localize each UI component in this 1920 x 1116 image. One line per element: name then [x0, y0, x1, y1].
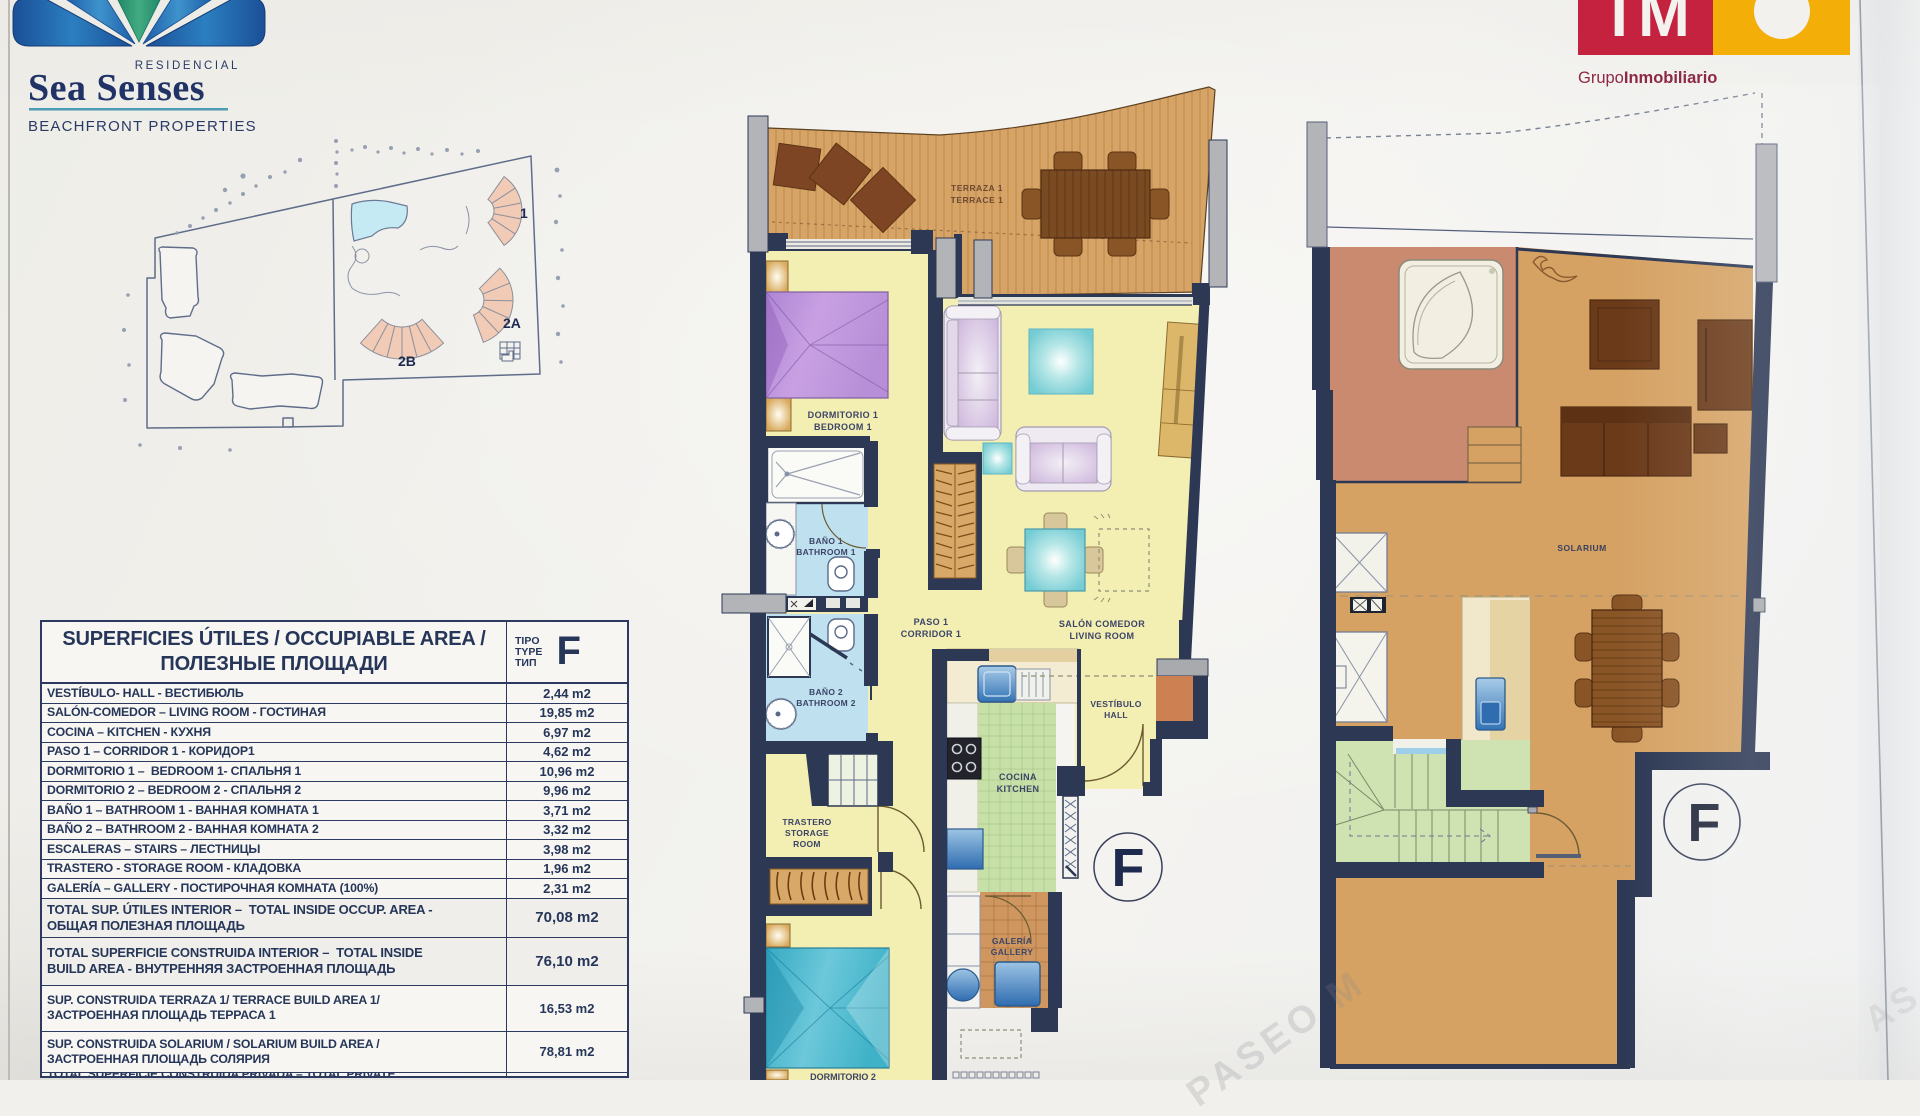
svg-text:1: 1 — [520, 205, 528, 221]
svg-text:GrupoInmobiliario: GrupoInmobiliario — [1578, 69, 1717, 87]
svg-text:CORRIDOR 1: CORRIDOR 1 — [901, 629, 962, 639]
svg-text:BAÑO 2: BAÑO 2 — [809, 687, 843, 697]
svg-text:KITCHEN: KITCHEN — [997, 784, 1040, 794]
svg-text:Sea Senses: Sea Senses — [28, 67, 205, 109]
svg-text:2A: 2A — [503, 315, 521, 331]
svg-text:VESTÍBULO: VESTÍBULO — [1090, 699, 1141, 709]
svg-text:BATHROOM 2: BATHROOM 2 — [796, 698, 856, 708]
svg-text:TM: TM — [1600, 0, 1690, 50]
svg-text:BEDROOM 1: BEDROOM 1 — [814, 422, 872, 432]
svg-text:DORMITORIO 1: DORMITORIO 1 — [808, 410, 879, 420]
svg-text:BATHROOM 1: BATHROOM 1 — [796, 547, 856, 557]
svg-text:TERRACE 1: TERRACE 1 — [951, 195, 1004, 205]
svg-text:SALÓN COMEDOR: SALÓN COMEDOR — [1059, 618, 1145, 629]
svg-text:TERRAZA 1: TERRAZA 1 — [951, 183, 1003, 193]
svg-text:COCINA: COCINA — [999, 772, 1037, 782]
svg-text:SOLARIUM: SOLARIUM — [1557, 543, 1606, 553]
svg-text:ROOM: ROOM — [793, 839, 821, 849]
svg-text:HALL: HALL — [1104, 710, 1128, 720]
svg-text:DORMITORIO 2: DORMITORIO 2 — [810, 1072, 876, 1080]
svg-text:GALERÍA: GALERÍA — [992, 936, 1032, 946]
svg-text:STORAGE: STORAGE — [785, 828, 829, 838]
svg-text:2B: 2B — [398, 353, 416, 369]
svg-text:LIVING ROOM: LIVING ROOM — [1070, 631, 1135, 641]
svg-text:F: F — [1112, 838, 1145, 898]
svg-text:PASO 1: PASO 1 — [914, 617, 949, 627]
svg-text:TRASTERO: TRASTERO — [782, 817, 831, 827]
svg-text:GALLERY: GALLERY — [991, 947, 1033, 957]
